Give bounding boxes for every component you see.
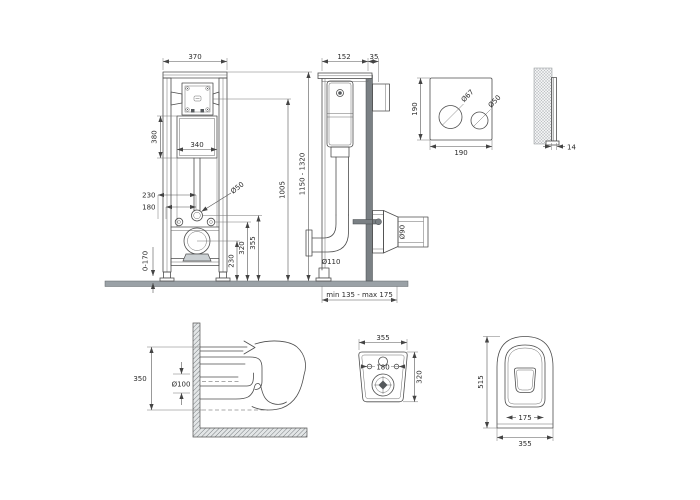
wall-rail: [366, 75, 373, 281]
bowl-rim-inner: [508, 348, 542, 404]
cistern-side-profile: [327, 81, 353, 157]
dim-bowl-height-label: 350: [133, 375, 146, 383]
flush-bend-outlet: [192, 210, 203, 221]
dim-outlet-depth-range-label: min 135 - max 175: [326, 291, 393, 299]
dim-drain-spacing-label: 180: [142, 204, 155, 212]
dim-flush-pipe-dia: Ø50: [202, 180, 246, 211]
frame-right-foot: [220, 272, 227, 278]
drawing-canvas: 370 380 340 230 180 Ø50: [0, 0, 700, 500]
dim-bowl-back-height-label: 320: [416, 370, 424, 383]
dim-cistern-top-height: 1005: [213, 99, 291, 281]
plate-base: [546, 141, 559, 145]
dim-plate-height-label: 190: [411, 102, 419, 115]
dim-outlet-pipe-dia: Ø100: [172, 362, 191, 405]
dim-frame-depth-label: 152: [337, 53, 350, 61]
outlet-pipe: Ø90: [373, 211, 429, 254]
drain-flange: [183, 254, 211, 261]
wall-bracket: [373, 84, 390, 111]
dim-bowl-width-back: 355: [359, 334, 407, 350]
bowl-side-section-view: 350 Ø100: [133, 323, 307, 437]
dim-small-button-dia-label: Ø50: [487, 94, 503, 110]
left-clamp: [171, 92, 182, 105]
dim-cistern-width-label: 340: [190, 141, 203, 149]
dim-frame-width: 370: [163, 53, 227, 70]
dim-outlet-depth-range: min 135 - max 175: [322, 287, 397, 304]
dim-plate-width-label: 190: [454, 149, 467, 157]
dim-flush-pipe-dia-label: Ø50: [229, 180, 245, 195]
dim-bowl-outlet-dia-label: Ø100: [172, 381, 191, 389]
ground-line: [105, 281, 408, 287]
dim-seat-opening-width-label: 175: [518, 414, 531, 422]
left-fixing-stud: [175, 218, 183, 226]
right-fixing-stud: [207, 218, 215, 226]
dim-fixing-hole-spacing-label: 180: [376, 364, 389, 372]
dim-bowl-width-top: 355: [497, 428, 553, 448]
dim-foot-adjustment-label: 0-170: [142, 251, 150, 271]
dim-bowl-back-height: 320: [403, 352, 424, 402]
frame-side-view: Ø110 Ø90 152 35: [306, 53, 428, 303]
dim-bowl-depth-label: 515: [477, 375, 485, 388]
dim-drain-elbow-dia-label: Ø110: [322, 258, 341, 266]
bowl-top-view: 175 515 355: [477, 337, 553, 449]
dim-outlet-pipe-dia-label: Ø90: [399, 225, 407, 239]
mounting-bolt: [353, 220, 377, 225]
dim-cistern-height-label: 380: [151, 130, 159, 143]
wall-section: [534, 68, 552, 144]
flush-plate: [430, 78, 492, 140]
flush-opening: [514, 368, 535, 393]
flush-plate-front-view: Ø67 Ø50 190 190: [411, 78, 503, 157]
dim-plate-width: 190: [430, 140, 492, 157]
wall-and-floor-section: [193, 323, 307, 437]
dim-drain-spacing: 180: [142, 204, 196, 220]
bolt-knob: [376, 219, 382, 225]
dim-bowl-depth: 515: [477, 337, 500, 429]
frame-front-view: 370 380 340 230 180 Ø50: [142, 53, 313, 293]
dim-plate-height: 190: [411, 78, 430, 140]
right-clamp: [213, 92, 219, 105]
bowl-section-profile: [200, 341, 306, 410]
dim-rail-depth-label: 35: [370, 53, 379, 61]
dim-cistern-top-height-label: 1005: [279, 181, 287, 199]
dim-bowl-width-top-label: 355: [518, 440, 531, 448]
flush-plate-side-view: 14: [534, 68, 576, 152]
dim-flush-height-label: 355: [249, 236, 257, 249]
dim-cistern-height: 380: [151, 116, 178, 158]
bowl-back-view: 355 320 180: [359, 334, 424, 402]
dim-frame-height-range-label: 1150 - 1320: [299, 153, 307, 196]
dim-seat-opening-width: 175: [507, 414, 544, 422]
bowl-rim-outer: [505, 345, 545, 407]
dim-fixing-height-label: 320: [238, 241, 246, 254]
dim-cistern-width: 340: [177, 141, 217, 150]
dim-fixing-spacing-label: 230: [142, 192, 155, 200]
cistern-access-panel: [182, 83, 213, 115]
frame-left-foot: [164, 272, 171, 278]
technical-drawing-sheet: 370 380 340 230 180 Ø50: [0, 0, 700, 500]
dim-frame-width-label: 370: [188, 53, 201, 61]
dim-bowl-width-back-label: 355: [376, 334, 389, 342]
side-foot: [319, 268, 329, 278]
dim-plate-thickness-label: 14: [567, 144, 576, 152]
dim-big-button-dia-label: Ø67: [460, 88, 476, 104]
bowl-outlet-hole: [372, 374, 394, 396]
drain-elbow: Ø110: [306, 215, 349, 266]
dim-frame-depth: 152: [322, 53, 368, 71]
dim-bowl-height: 350: [133, 347, 202, 410]
dim-outlet-height-label: 230: [228, 254, 236, 267]
